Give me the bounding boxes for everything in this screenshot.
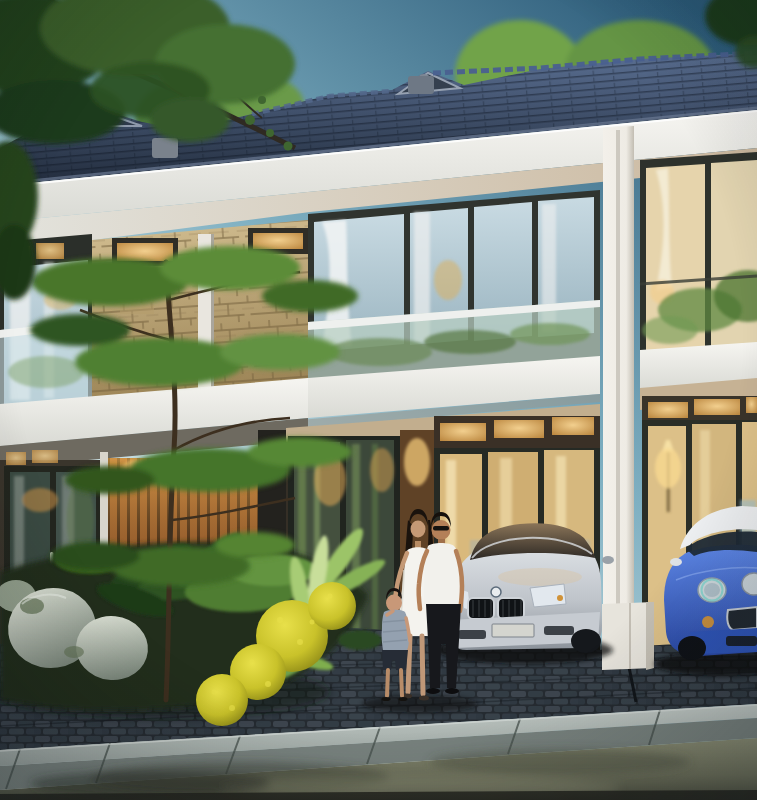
scene-svg (0, 0, 757, 800)
warm-ceiling-light (36, 243, 64, 259)
clerestory-glass (253, 233, 303, 249)
license-plate (492, 624, 534, 637)
side-mirror (602, 556, 614, 564)
flower-mound (308, 582, 356, 630)
reflection (510, 323, 590, 345)
flower-mound (196, 674, 248, 726)
blinker (557, 595, 563, 601)
kidney-grille (498, 598, 524, 619)
transom-windows-right (642, 396, 757, 424)
sandal (419, 696, 429, 701)
bumper-intake (726, 636, 757, 646)
transom-window (494, 420, 544, 438)
reflection (424, 330, 516, 354)
clerestory-glass (117, 243, 173, 261)
shoe (426, 688, 440, 694)
foliage (262, 280, 358, 312)
wet-patch (430, 749, 690, 775)
rock-moss (20, 598, 44, 614)
transom-window (648, 402, 688, 418)
foliage (248, 437, 352, 467)
foliage (65, 466, 155, 494)
wheel (678, 636, 706, 660)
shoe (399, 697, 408, 701)
rock-moss (64, 646, 84, 658)
mother-leg (422, 636, 423, 694)
transom-window (552, 417, 594, 435)
foliage (215, 532, 295, 558)
reflection (328, 338, 432, 366)
transom-windows-center (434, 416, 600, 448)
foliage (150, 98, 230, 142)
lamp-glow (655, 448, 681, 488)
gutter-box (408, 76, 434, 94)
kidney-grille (468, 598, 494, 619)
transom-window (440, 423, 486, 441)
bumper-intake (544, 626, 574, 635)
warm-reflection (22, 488, 58, 512)
bmw-roundel (491, 587, 501, 597)
gutter-box (152, 138, 178, 158)
foliage-reflection (642, 316, 698, 344)
shoe (445, 688, 459, 694)
wheel (571, 629, 601, 653)
boy-leg (401, 670, 402, 696)
boy-leg (387, 670, 388, 696)
transom-window (32, 450, 58, 463)
sunglasses (433, 526, 449, 531)
column-gutter-line (616, 130, 620, 606)
mother-face (411, 521, 426, 538)
foliage (30, 314, 130, 346)
balustrade-reflection (8, 356, 84, 388)
transom-window (6, 452, 26, 465)
side-mirror (670, 558, 682, 566)
architectural-rendering (0, 0, 757, 800)
leaf (338, 630, 382, 650)
boy-face (386, 595, 402, 612)
downlight-glow (404, 438, 430, 486)
warm-reflection (370, 448, 394, 492)
headlight-inner (704, 583, 720, 597)
transom-window (746, 397, 757, 413)
chrome-grille (727, 607, 757, 630)
pedestal-shade (646, 602, 654, 670)
transom-window (694, 399, 740, 415)
foliage (220, 334, 340, 370)
bumper-intake (458, 630, 486, 639)
foliage (50, 542, 140, 570)
foliage (160, 246, 300, 290)
foliage (75, 338, 245, 386)
hood-reflection (498, 568, 582, 586)
lamp-glow (434, 260, 462, 300)
shoe (382, 697, 391, 701)
fog-light (702, 616, 714, 628)
